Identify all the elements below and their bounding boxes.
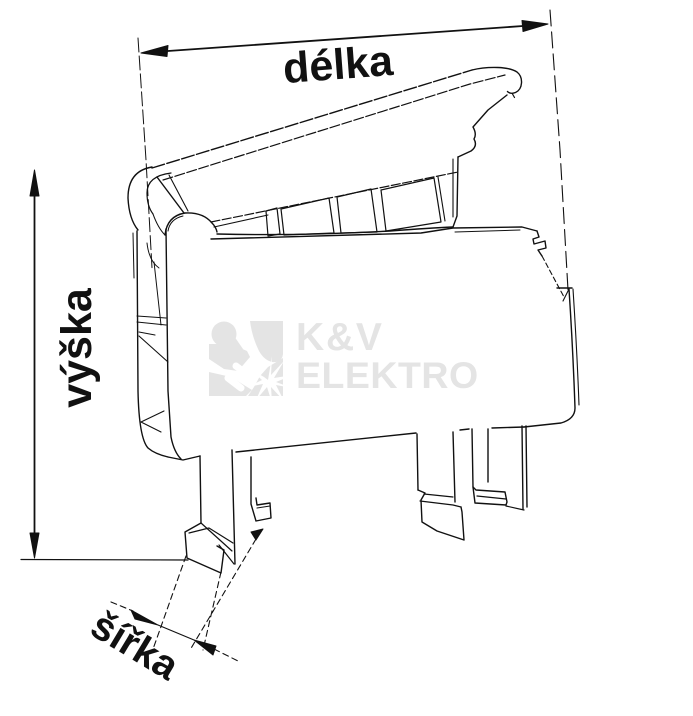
svg-text:ELEKTRO: ELEKTRO <box>296 354 479 396</box>
svg-text:K&V: K&V <box>296 316 384 359</box>
svg-text:délka: délka <box>281 37 395 93</box>
svg-text:výška: výška <box>53 287 101 408</box>
